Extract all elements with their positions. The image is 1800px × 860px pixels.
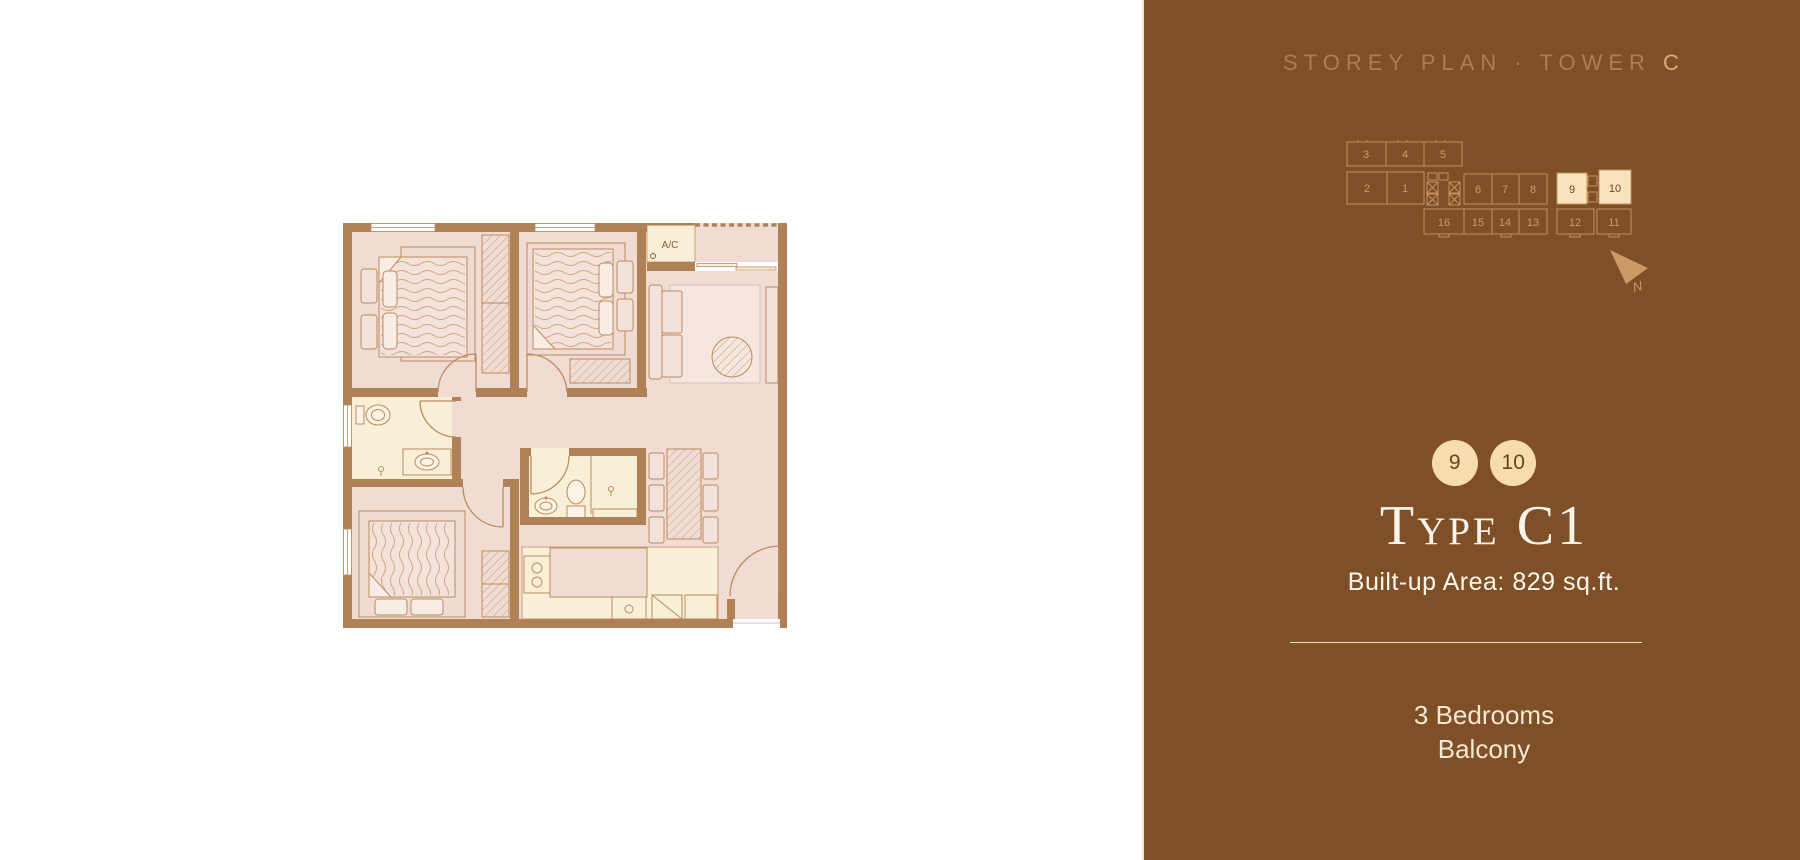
unit-number-highlighted: 9 [1569,184,1575,196]
unit-number: 7 [1502,184,1508,196]
feature-balcony: Balcony [1156,732,1800,766]
floor-plan-drawing: A/C [343,223,787,628]
storey-plan-map: 3 4 5 2 1 6 7 8 16 15 14 13 12 11 9 [1346,140,1638,247]
kitchen-sink-icon [612,597,646,619]
unit-number: 4 [1402,149,1408,161]
tv-console-icon [766,287,778,383]
chair-icon [703,517,718,543]
pillow [375,599,407,615]
sofa-cushion [662,291,682,333]
feature-bedrooms: 3 Bedrooms [1156,698,1800,732]
unit-number: 1 [1402,183,1408,195]
north-label: N [1631,278,1644,295]
unit-badge-9: 9 [1432,440,1478,486]
chair-icon [649,517,664,543]
plan-canvas: A/C [0,0,1142,860]
feature-list: 3 Bedrooms Balcony [1156,698,1800,766]
toilet-icon [366,405,390,425]
ac-label: A/C [662,240,679,251]
unit-type-title: Type C1 [1156,494,1800,558]
kitchen-counter [550,548,647,597]
pillow [383,271,397,307]
nightstand-icon [361,315,377,349]
toilet-icon [567,480,585,504]
nightstand-icon [361,269,377,303]
sofa-back [649,285,662,379]
unit-number: 15 [1472,217,1484,229]
pillow [599,263,613,297]
unit-number: 12 [1569,217,1581,229]
storey-plan-title-text: STOREY PLAN · TOWER [1283,50,1663,75]
sink-icon [535,498,557,514]
lift-lobby [1427,173,1460,205]
toilet-tank [356,406,364,424]
unit-number: 8 [1530,184,1536,196]
nightstand-icon [617,299,633,331]
storey-plan-title: STOREY PLAN · TOWER C [1156,50,1800,76]
unit-number: 13 [1527,217,1539,229]
unit-badges: 9 10 [1156,440,1800,486]
unit-number: 14 [1499,217,1511,229]
divider [1290,642,1642,643]
unit-number: 16 [1438,217,1450,229]
floor-plan: A/C [343,223,787,628]
shower-ledge [593,509,637,518]
appliance-icon [685,595,717,619]
sink-icon [415,454,439,470]
north-arrow-icon: N [1602,244,1660,301]
unit-number: 3 [1363,149,1369,161]
built-up-area: Built-up Area: 829 sq.ft. [1156,568,1800,597]
pillow [411,599,443,615]
nightstand-icon [617,261,633,293]
chair-icon [649,485,664,511]
chair-icon [649,453,664,479]
chair-icon [703,485,718,511]
dining-table-icon [667,449,701,539]
tower-letter: C [1663,50,1685,75]
sofa-cushion [662,335,682,377]
unit-badge-10: 10 [1490,440,1536,486]
dining-area [649,449,718,543]
pillow [599,301,613,335]
unit-number: 6 [1475,184,1481,196]
round-rug-icon [712,337,752,377]
unit-number: 11 [1608,217,1619,229]
chair-icon [703,453,718,479]
bench-icon [570,359,630,383]
unit-number: 5 [1440,149,1446,161]
toilet-tank [567,506,585,518]
unit-number-highlighted: 10 [1609,183,1621,195]
unit-number: 2 [1364,183,1370,195]
pillow [383,313,397,349]
info-panel: STOREY PLAN · TOWER C [1142,0,1800,860]
